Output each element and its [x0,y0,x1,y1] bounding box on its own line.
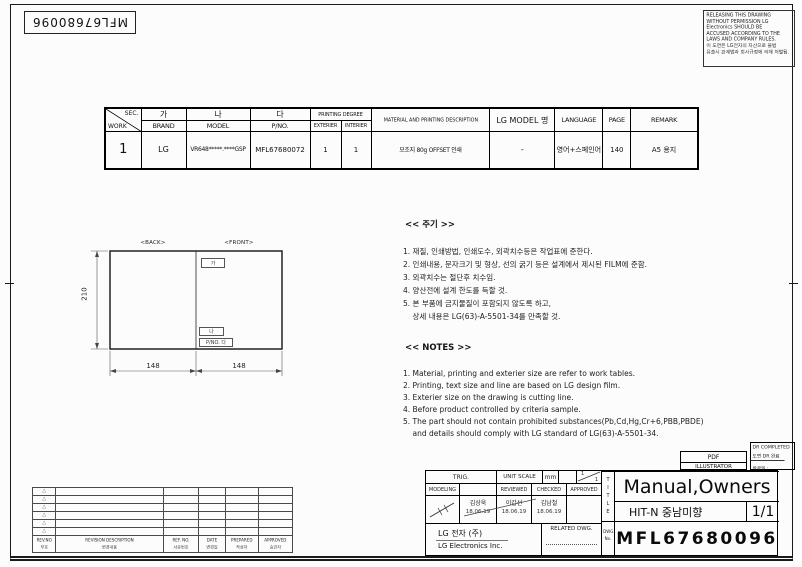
modeling-header: MODELING [426,483,459,495]
header-material: MATERIAL AND PRINTING DESCRIPTION [371,108,490,132]
notes-ko-line: 5. 본 부품에 금지물질이 포함되지 않도록 하고, [403,298,551,309]
cell-model: VR648*****.****GSP [186,132,250,169]
related-dwg-dotted-line [546,544,597,545]
right-center-tick [789,283,798,284]
approver-date: 18.06.19 [532,508,566,516]
sec-work-header-cell: SEC. WORK [105,108,141,132]
title-vertical-strip: TITLE [601,471,614,521]
pdf-label: PDF [681,452,746,463]
warning-line-ko: 유출시 관계법과 회사규정에 의해 처벌됨. [706,49,795,55]
cell-sec: 1 [105,132,141,169]
dr-completed-ko: 도면 DR 완료 [751,452,785,461]
revision-footer-date: DATE 변경일 [199,536,226,553]
dwg-no-strip: DWG. No. [601,521,614,556]
drawing-subtitle: HIT-N 중남미향 [614,501,746,521]
notes-ko-line: 1. 재질, 인쇄방법, 인쇄도수, 외곽치수등은 작업표에 준한다. [403,246,593,257]
approver-name: 김남철 [532,500,566,508]
cell-language: 영어+스페인어 [555,132,603,169]
approver-name: 이갑선 [497,500,531,508]
blank-cell [566,495,601,523]
revision-empty-cell [56,496,164,504]
revision-footer-revno: REV.NO 부호 [33,536,56,553]
header-exterier: EXTERIER [310,121,341,132]
projection-symbol-cell [426,495,459,523]
title-block: TRIG. UNIT SCALE mm 1 1 MODELING REVIEWE… [425,470,778,556]
cell-pno: MFL67680072 [250,132,310,169]
revision-marker: △ [33,528,56,536]
header-material-text: MATERIAL AND PRINTING DESCRIPTION [383,117,477,123]
title-vertical-text: TITLE [605,477,611,517]
cell-lg-model: - [490,132,555,169]
dr-completed-box: DR COMPLETED 도면 DR 완료 완료일 : [750,442,795,470]
company-cell: LG 전자 (주) LG Electronics Inc. [426,523,541,556]
dim-height: 210 [81,287,89,300]
header-remark: REMARK [631,108,698,132]
notes-en-line: 5. The part should not contain prohibite… [403,417,704,426]
notes-ko-line: 2. 인쇄내용, 문자크기 및 형상, 선의 굵기 등은 설계에서 제시된 FI… [403,259,647,270]
work-label: WORK [108,123,127,130]
scale-top: 1 [581,471,584,477]
revision-footer-refno: REF. NO. 사유번호 [164,536,199,553]
drawing-title: Manual,Owners [614,471,779,501]
approver-date: 18.06.19 [497,508,531,516]
company-name-ko: LG 전자 (주) [426,524,541,539]
revision-marker: △ [33,512,56,520]
scale-ratio-cell: 1 1 [576,471,601,483]
front-model-box: 나 [199,327,224,336]
notes-en-line: 1. Material, printing and exterier size … [403,369,635,378]
revision-footer-prepared: PREPARED 작성자 [226,536,259,553]
notes-en-line: 4. Before product controlled by criteria… [403,405,581,414]
revision-marker: △ [33,504,56,512]
header-ga: 가 [141,108,186,121]
doc-number-rotated: MFL67680096 [25,12,135,33]
related-dwg-label: RELATED DWG. [542,524,601,532]
doc-number-box: MFL67680096 [24,11,136,34]
header-interier: INTERIER [341,121,371,132]
blank-cell [558,471,576,483]
notes-en-line: 2. Printing, text size and line are base… [403,381,620,390]
blank-cell [459,483,496,495]
part-outline-drawing [80,238,300,383]
front-brand-box: 가 [201,258,225,268]
work-spec-table: SEC. WORK 가 나 다 PRINTING DEGREE MATERIAL… [104,107,699,170]
revision-empty-cell [56,528,164,536]
dwg-label: DWG. [603,523,613,534]
projection-symbol [426,496,458,523]
cell-brand: LG [141,132,186,169]
front-pno-box: P/NO. 다 [199,338,233,347]
pdf-format-box: PDF ILLUSTRATOR [680,451,747,470]
drawing-number: MFL67680096 [614,521,779,556]
notes-en-line: 3. Exterier size on the drawing is cutti… [403,393,573,402]
sheet-number: 1/1 [746,501,779,521]
dim-width-right: 148 [224,362,254,370]
header-pno: P/NO. [250,121,310,132]
company-name-en: LG Electronics Inc. [426,541,541,550]
notes-ko-line: 상세 내용은 LG(63)-A-5501-34를 만족할 것. [403,311,560,322]
revision-marker: △ [33,496,56,504]
cell-material: 모조지 80g OFFSET 인쇄 [371,132,490,169]
header-na: 나 [186,108,250,121]
warning-box: RELEASING THIS DRAWING WITHOUT PERMISSIO… [703,10,795,67]
notes-en-title: << NOTES >> [405,343,471,353]
revision-empty-cell [56,520,164,528]
approver-1: 김상욱 18.06.19 [459,495,496,523]
header-lg-model: LG MODEL 명 [490,108,555,132]
header-brand: BRAND [141,121,186,132]
cell-interier: 1 [341,132,371,169]
notes-ko-line: 3. 외곽치수는 절단후 치수임. [403,272,496,283]
notes-en-line: and details should comply with LG standa… [403,429,659,438]
approver-2: 이갑선 18.06.19 [496,495,531,523]
revision-empty-cell [56,512,164,520]
header-da: 다 [250,108,310,121]
approver-name: 김상욱 [460,500,496,508]
unit-scale-header: UNIT SCALE [496,471,542,483]
notes-ko-line: 4. 양산전에 설계 한도를 득할 것. [403,285,507,296]
revision-empty-cell [56,504,164,512]
approved-header: APPROVED [566,483,601,495]
left-center-tick [5,283,14,284]
revision-footer-description: REVISION DESCRIPTION 변경내용 [56,536,164,553]
cell-page: 140 [603,132,631,169]
header-language: LANGUAGE [555,108,603,132]
reviewed-header: REVIEWED [496,483,531,495]
revision-footer-approved: APPROVED 승인자 [258,536,292,553]
revision-marker: △ [33,488,56,496]
revision-empty-cell [56,488,164,496]
revision-table: △ △ △ △ △ △ REV.NO 부호 REVISION DESCRIPTI… [32,487,293,553]
approver-date: 18.06.19 [460,508,496,516]
header-printing-degree: PRINTING DEGREE [310,108,371,121]
dr-completed-en: DR COMPLETED [751,444,785,450]
unit-value: mm [542,471,558,483]
dim-width-left: 148 [138,362,168,370]
cell-remark: A5 용지 [631,132,698,169]
header-model: MODEL [186,121,250,132]
checked-header: CHECKED [531,483,566,495]
approver-3: 김남철 18.06.19 [531,495,566,523]
revision-marker: △ [33,520,56,528]
sec-label: SEC. [125,110,139,117]
header-page: PAGE [603,108,631,132]
trig-header: TRIG. [426,471,496,483]
notes-ko-title: << 주기 >> [405,218,455,230]
no-label: No. [603,537,613,542]
drawing-sheet: MFL67680096 RELEASING THIS DRAWING WITHO… [0,0,802,567]
related-dwg-cell: RELATED DWG. [541,523,601,556]
cell-exterier: 1 [310,132,341,169]
